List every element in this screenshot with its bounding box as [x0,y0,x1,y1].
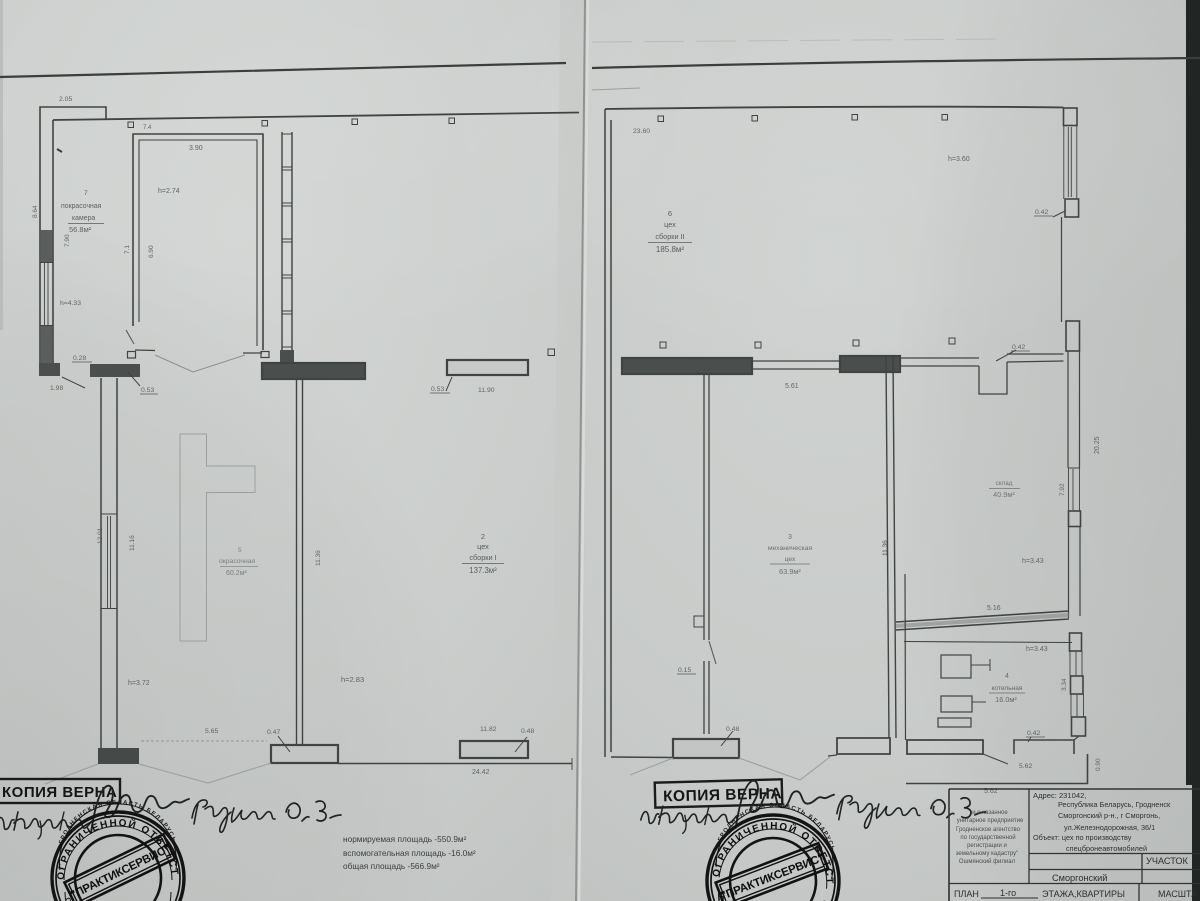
svg-text:механическая: механическая [768,545,813,552]
svg-text:сборки II: сборки II [655,232,684,241]
svg-text:сборки I: сборки I [469,553,496,562]
svg-text:земельному кадастру": земельному кадастру" [956,851,1019,857]
svg-text:0.42: 0.42 [1035,209,1048,216]
svg-text:3.90: 3.90 [189,145,203,152]
svg-text:5: 5 [238,547,242,554]
svg-text:6: 6 [668,209,672,218]
svg-text:цех: цех [477,542,489,551]
svg-text:МАСШТА: МАСШТА [1158,889,1197,899]
svg-text:унитарное предприятие: унитарное предприятие [957,818,1024,824]
svg-text:11.36: 11.36 [315,550,322,566]
svg-text:0.15: 0.15 [678,667,691,674]
svg-text:Республика Беларусь, Гродненск: Республика Беларусь, Гродненск [1058,800,1171,809]
svg-text:Гродненское агентство: Гродненское агентство [956,827,1021,833]
svg-text:h=3.43: h=3.43 [1022,558,1044,565]
svg-text:ЭТАЖА,КВАРТИРЫ: ЭТАЖА,КВАРТИРЫ [1042,889,1125,899]
svg-text:ПЛАН: ПЛАН [954,889,979,899]
svg-text:покрасочная: покрасочная [61,203,102,210]
svg-text:цех: цех [785,556,796,563]
svg-text:ул.Железнодорожная, 36/1: ул.Железнодорожная, 36/1 [1064,823,1155,832]
svg-text:0.47: 0.47 [267,729,280,736]
svg-text:Объект: цех по производству: Объект: цех по производству [1033,833,1132,842]
svg-text:h=3.60: h=3.60 [948,156,970,163]
svg-text:Сморгонский: Сморгонский [1052,873,1107,883]
svg-text:по государственной: по государственной [960,834,1015,841]
svg-text:0.48: 0.48 [521,728,534,735]
svg-text:Адрес: 231042,: Адрес: 231042, [1033,791,1086,800]
svg-text:h=4.33: h=4.33 [60,300,81,307]
svg-text:h=2.74: h=2.74 [158,188,180,195]
svg-text:16.0м²: 16.0м² [995,695,1017,704]
svg-text:h=3.72: h=3.72 [128,680,150,687]
svg-text:окрасочная: окрасочная [219,558,255,565]
svg-text:7.90: 7.90 [64,234,71,247]
svg-text:КОПИЯ ВЕРНА: КОПИЯ ВЕРНА [2,784,117,801]
svg-text:63.9м²: 63.9м² [779,567,801,576]
svg-text:11.36: 11.36 [882,540,889,556]
svg-text:5.62: 5.62 [1019,763,1032,770]
svg-text:и о казанное: и о казанное [972,810,1008,816]
svg-text:камера: камера [72,215,95,222]
svg-text:11.82: 11.82 [480,726,497,733]
svg-text:УЧАСТОК: УЧАСТОК [1146,856,1189,866]
svg-text:3.34: 3.34 [1061,678,1068,691]
svg-text:5.65: 5.65 [205,728,218,735]
svg-text:11.16: 11.16 [129,535,136,551]
svg-text:вспомогательная площадь -16.0м: вспомогательная площадь -16.0м² [343,848,476,858]
svg-text:2.05: 2.05 [59,96,72,103]
svg-text:5.16: 5.16 [987,605,1001,612]
svg-text:котельная: котельная [991,685,1022,692]
svg-text:7.4: 7.4 [143,125,152,131]
svg-text:регистрации и: регистрации и [967,843,1007,849]
svg-text:1-го: 1-го [1000,888,1016,898]
svg-text:11.90: 11.90 [478,387,495,394]
svg-text:склад: склад [996,480,1013,487]
svg-text:0.48: 0.48 [726,726,739,733]
svg-text:12.01: 12.01 [97,527,104,544]
svg-text:0.42: 0.42 [1012,344,1025,351]
svg-text:2: 2 [481,532,485,541]
svg-text:1.98: 1.98 [50,385,63,392]
svg-text:0.42: 0.42 [1027,730,1040,737]
svg-text:нормируемая площадь -550.9м²: нормируемая площадь -550.9м² [343,834,467,844]
svg-text:0.90: 0.90 [1095,758,1102,771]
svg-text:0.28: 0.28 [73,355,86,362]
svg-text:0.53: 0.53 [141,387,154,394]
svg-text:56.8м²: 56.8м² [69,225,92,234]
svg-text:7.1: 7.1 [124,245,131,254]
svg-text:цех: цех [664,220,676,229]
svg-text:137.3м²: 137.3м² [469,566,497,575]
svg-text:общая площадь -566.9м²: общая площадь -566.9м² [343,861,440,871]
svg-text:6.90: 6.90 [148,245,155,258]
svg-text:Ошмянский филиал: Ошмянский филиал [959,858,1016,865]
svg-text:0.53: 0.53 [431,386,444,393]
svg-text:24.42: 24.42 [472,769,490,776]
svg-text:7.92: 7.92 [1059,483,1066,496]
svg-text:4: 4 [1005,673,1009,680]
svg-text:3: 3 [788,534,792,541]
svg-text:Сморгонский р-н., г Сморгонь,: Сморгонский р-н., г Сморгонь, [1058,811,1160,820]
svg-text:5.61: 5.61 [785,383,799,390]
svg-text:185.8м²: 185.8м² [656,245,685,254]
svg-text:h=2.83: h=2.83 [341,675,364,684]
svg-text:h=3.43: h=3.43 [1026,646,1048,653]
svg-text:20.25: 20.25 [1094,436,1101,454]
svg-text:8.64: 8.64 [32,205,39,218]
svg-text:7: 7 [84,190,88,197]
svg-text:23.60: 23.60 [633,128,650,135]
svg-text:60.2м²: 60.2м² [226,570,247,577]
svg-text:спецбронеавтомобилей: спецбронеавтомобилей [1066,844,1147,853]
svg-text:40.9м²: 40.9м² [993,490,1015,499]
